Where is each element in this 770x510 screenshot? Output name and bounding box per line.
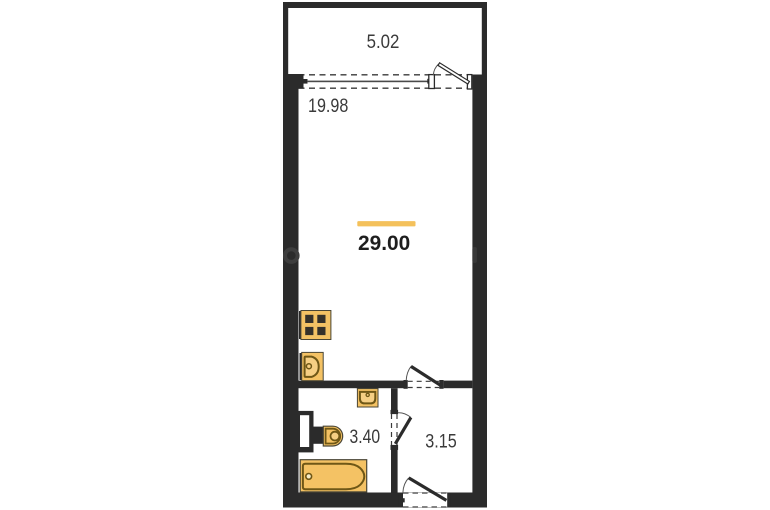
svg-text:29.00: 29.00 [358, 232, 410, 255]
svg-text:19.98: 19.98 [308, 96, 348, 117]
svg-text:3.15: 3.15 [425, 431, 457, 453]
svg-text:3.40: 3.40 [350, 426, 381, 448]
svg-text:5.02: 5.02 [367, 31, 400, 53]
